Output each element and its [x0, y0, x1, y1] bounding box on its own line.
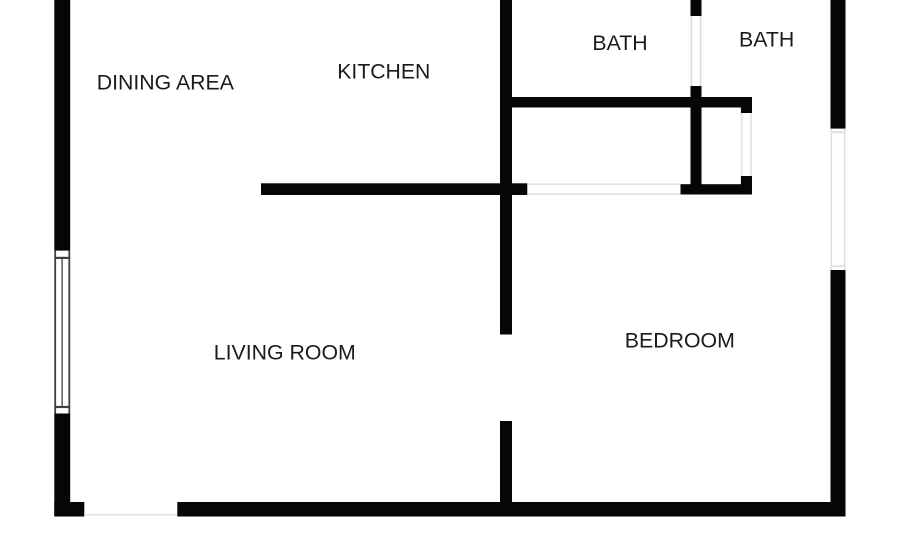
svg-text:BATH: BATH: [739, 28, 794, 52]
svg-text:DINING AREA: DINING AREA: [97, 70, 235, 94]
svg-text:BEDROOM: BEDROOM: [625, 328, 735, 352]
svg-text:LIVING ROOM: LIVING ROOM: [214, 341, 356, 365]
svg-text:KITCHEN: KITCHEN: [337, 60, 430, 83]
svg-text:BATH: BATH: [592, 31, 647, 55]
